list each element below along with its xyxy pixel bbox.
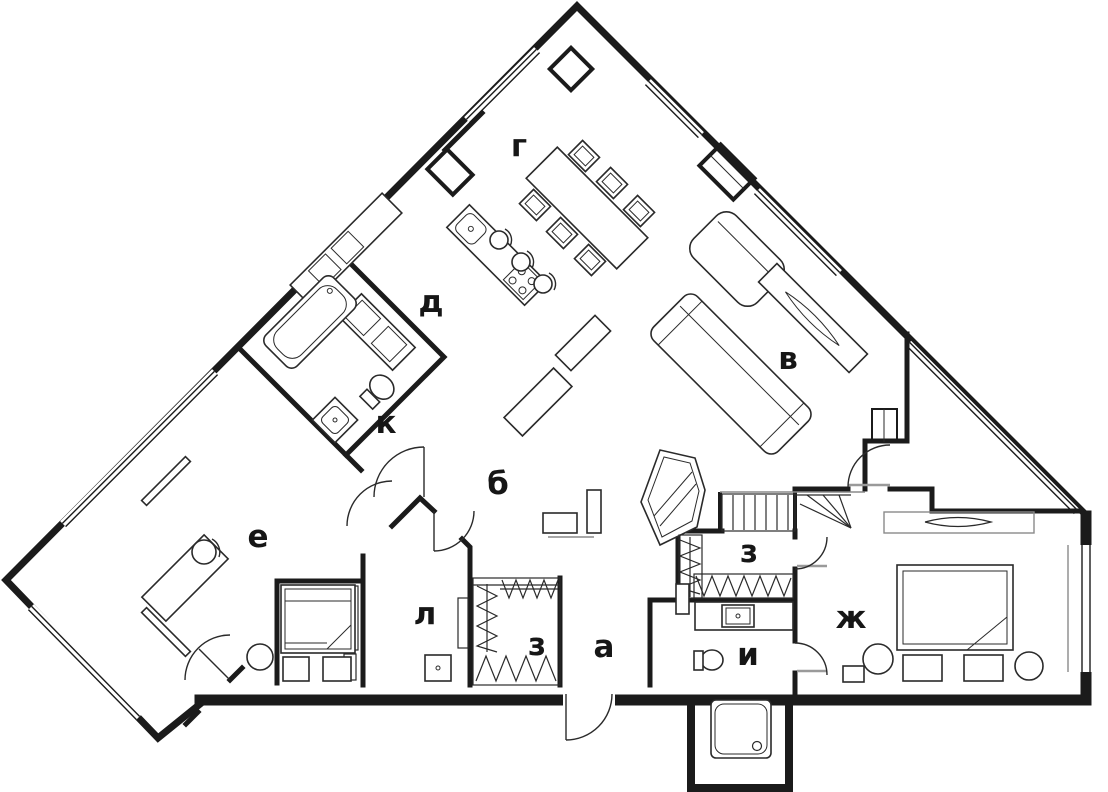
nightstand: [323, 657, 351, 681]
staircase: [720, 492, 865, 531]
room-label-entry-a: а: [594, 629, 615, 665]
closet-z1: [473, 578, 560, 685]
kitchen-shaft: [427, 149, 472, 194]
radiator: [142, 457, 191, 506]
nightstand: [903, 655, 942, 681]
room-label-bedroom: ж: [836, 600, 867, 636]
dining-table: [519, 140, 654, 275]
kitchen-counter: [290, 193, 402, 305]
room-label-bath-i: и: [737, 637, 759, 673]
bed-zh: [897, 565, 1013, 650]
cabinet: [543, 513, 577, 533]
living-furniture: [647, 206, 868, 458]
room-label-kitchen: д: [418, 284, 443, 320]
bedroom-zh-furniture: [843, 512, 1043, 682]
room-label-bath-k: к: [375, 405, 396, 441]
shower-tray: [711, 700, 771, 758]
floor-plan-page: г д в к б е л з а з ж и: [0, 0, 1108, 792]
nightstand: [964, 655, 1003, 681]
washbasin: [312, 397, 357, 442]
bench: [504, 368, 572, 436]
cabinet: [587, 490, 601, 533]
room-label-closet-1: з: [528, 627, 546, 663]
floor-plan-canvas: г д в к б е л з а з ж и: [0, 0, 1108, 792]
room-e-furniture: [142, 457, 355, 681]
entrance-opening: [563, 693, 615, 708]
toilet: [701, 650, 723, 670]
bench: [555, 315, 610, 370]
column: [676, 584, 689, 614]
wardrobe: [884, 512, 1034, 533]
room-label-hall-l: л: [414, 596, 437, 632]
room-label-room-e: е: [247, 519, 268, 555]
nightstand: [283, 657, 309, 681]
round-table: [247, 644, 273, 670]
mirror: [458, 598, 468, 648]
round-table: [1015, 652, 1043, 680]
stool: [843, 666, 864, 682]
chimney-block: [699, 144, 754, 199]
desk-chair: [192, 540, 216, 564]
shaft-blocks: [427, 48, 754, 200]
sliding-door-lens: [925, 518, 991, 527]
round-table: [863, 644, 893, 674]
room-label-living: в: [778, 341, 798, 377]
room-label-hall-b: б: [487, 466, 509, 502]
cabinet: [425, 655, 451, 681]
bathroom-i-fixtures: [694, 602, 793, 758]
room-label-dining: г: [511, 128, 527, 164]
room-label-closet-2: з: [740, 534, 758, 570]
